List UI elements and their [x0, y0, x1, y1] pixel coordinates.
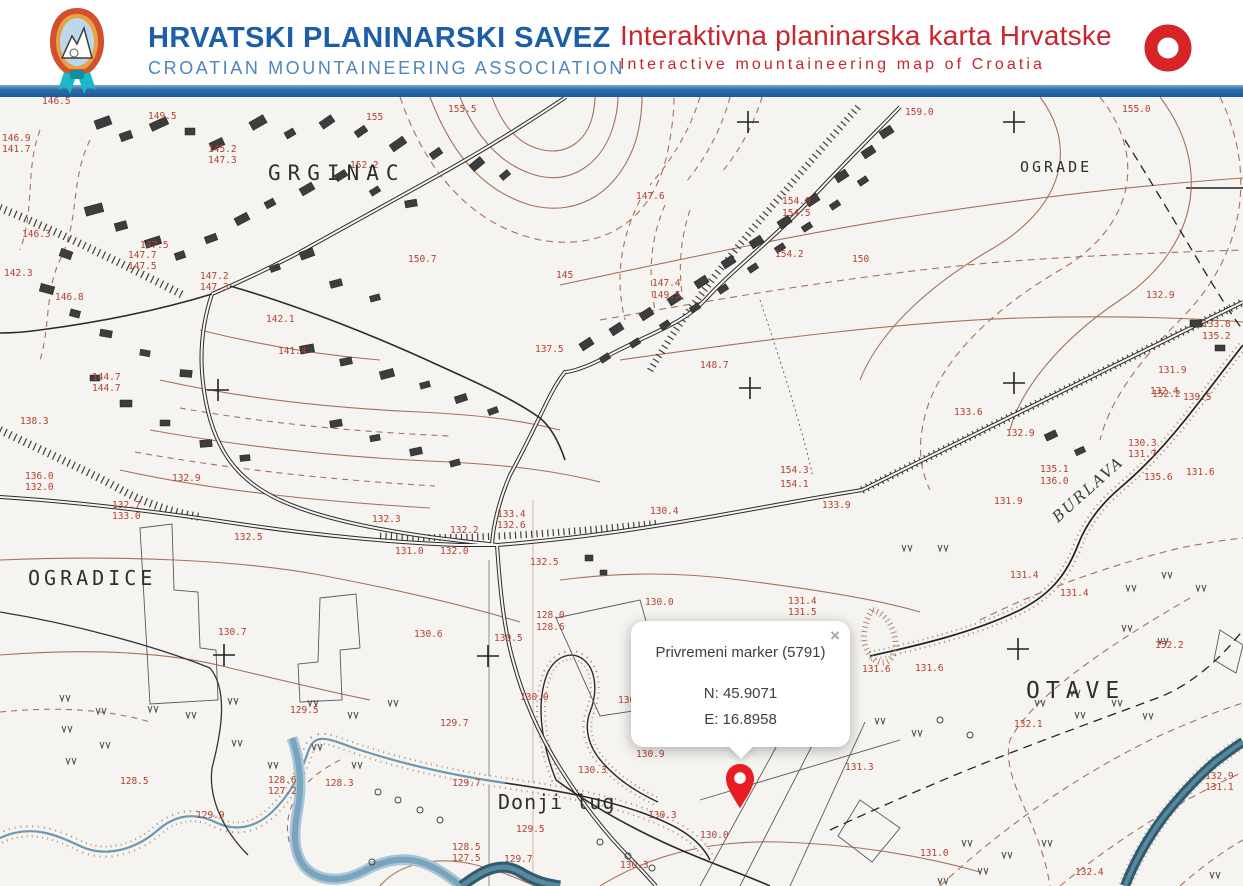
map-canvas[interactable]: 146.5149.5145.2147.3146.9141.7146.3142.3…	[0, 97, 1243, 886]
elevation-label: 131.4	[1060, 588, 1089, 599]
elevation-label: 129.5	[516, 824, 545, 835]
elevation-label: 154.2	[775, 249, 804, 260]
elevation-label: 130.6	[414, 629, 443, 640]
elevation-label: 127.5	[452, 853, 481, 864]
elevation-label: 145	[556, 270, 573, 281]
elevation-label: 133.0	[112, 511, 141, 522]
building	[185, 128, 195, 135]
elevation-label: 133.6	[954, 407, 983, 418]
elevation-label: 135.1	[1040, 464, 1069, 475]
place-label: OGRADICE	[28, 566, 156, 590]
elevation-label: 130.3	[578, 765, 607, 776]
building	[585, 555, 593, 561]
elevation-label: 131.6	[1186, 467, 1215, 478]
elevation-label: 149.5	[148, 111, 177, 122]
elevation-label: 130.7	[218, 627, 247, 638]
app-title-block: Interaktivna planinarska karta Hrvatske …	[620, 20, 1120, 74]
elevation-label: 129.7	[504, 854, 533, 865]
org-subtitle: CROATIAN MOUNTAINEERING ASSOCIATION	[148, 58, 618, 79]
elevation-label: 137.5	[535, 344, 564, 355]
popup-lon: E: 16.8958	[631, 707, 850, 733]
building	[160, 420, 170, 426]
elevation-label: 136.0	[25, 471, 54, 482]
building	[180, 369, 193, 377]
ring-logo-icon	[1144, 24, 1192, 72]
elevation-label: 135.6	[1144, 472, 1173, 483]
elevation-label: 131.7	[1128, 449, 1157, 460]
elevation-label: 142.3	[4, 268, 33, 279]
elevation-label: 150.7	[408, 254, 437, 265]
elevation-label: 129.7	[440, 718, 469, 729]
elevation-label: 131.6	[862, 664, 891, 675]
building	[240, 455, 250, 462]
building	[1215, 345, 1225, 351]
place-label: Donji lug	[498, 790, 615, 814]
elevation-label: 132.9	[1205, 771, 1234, 782]
popup-close-icon[interactable]: ×	[830, 627, 840, 644]
elevation-label: 132.2	[450, 525, 479, 536]
elevation-label: 130.3	[620, 860, 649, 871]
popup-title: Privremeni marker (5791)	[631, 644, 850, 661]
elevation-label: 128.5	[452, 842, 481, 853]
elevation-label: 131.4	[788, 596, 817, 607]
elevation-label: 141.4	[278, 346, 307, 357]
elevation-label: 146.5	[42, 97, 71, 107]
elevation-label: 142.1	[266, 314, 295, 325]
elevation-label: 130.3	[1128, 438, 1157, 449]
elevation-label: 141.7	[2, 144, 31, 155]
place-label: OTAVE	[1026, 678, 1125, 704]
elevation-label: 132.5	[234, 532, 263, 543]
elevation-label: 147.7	[128, 250, 157, 261]
elevation-label: 129.7	[452, 778, 481, 789]
elevation-label: 144.7	[92, 383, 121, 394]
building	[120, 400, 132, 407]
elevation-label: 144.7	[92, 372, 121, 383]
elevation-label: 146.3	[22, 229, 51, 240]
elevation-label: 131.4	[1010, 570, 1039, 581]
elevation-label: 132.9	[1146, 290, 1175, 301]
app-title: Interaktivna planinarska karta Hrvatske	[620, 20, 1120, 52]
elevation-label: 128.6	[268, 775, 297, 786]
elevation-label: 130.5	[494, 633, 523, 644]
map-popup: × Privremeni marker (5791) N: 45.9071 E:…	[631, 621, 850, 747]
elevation-label: 131.9	[1158, 365, 1187, 376]
popup-coordinates: N: 45.9071 E: 16.8958	[631, 681, 850, 732]
elevation-label: 154.5	[782, 208, 811, 219]
elevation-label: 154.1	[780, 479, 809, 490]
elevation-label: 152.2	[1152, 389, 1181, 400]
map-image: 146.5149.5145.2147.3146.9141.7146.3142.3…	[0, 97, 1243, 886]
elevation-label: 155	[366, 112, 383, 123]
elevation-label: 128.5	[120, 776, 149, 787]
elevation-label: 131.5	[788, 607, 817, 618]
building	[200, 439, 213, 447]
elevation-label: 159.0	[905, 107, 934, 118]
elevation-label: 145.2	[208, 144, 237, 155]
elevation-label: 128.3	[325, 778, 354, 789]
elevation-label: 128.6	[536, 622, 565, 633]
elevation-label: 132.6	[497, 520, 526, 531]
elevation-label: 130.4	[650, 506, 679, 517]
map-marker-pin[interactable]	[723, 761, 757, 813]
elevation-label: 146.9	[2, 133, 31, 144]
elevation-label: 133.8	[1202, 319, 1231, 330]
elevation-label: 132.0	[25, 482, 54, 493]
elevation-label: 132.9	[172, 473, 201, 484]
elevation-label: 139.5	[1183, 392, 1212, 403]
header-divider-bar	[0, 85, 1243, 97]
elevation-label: 130.0	[645, 597, 674, 608]
elevation-label: 132.0	[440, 546, 469, 557]
org-title: HRVATSKI PLANINARSKI SAVEZ	[148, 22, 618, 55]
elevation-label: 129.9	[196, 810, 225, 821]
elevation-label: 132.1	[1014, 719, 1043, 730]
elevation-label: 147.5	[128, 261, 157, 272]
elevation-label: 147.2	[200, 271, 229, 282]
elevation-label: 154.0	[782, 196, 811, 207]
elevation-label: 132.9	[1006, 428, 1035, 439]
elevation-label: 128.0	[536, 610, 565, 621]
elevation-label: 130.3	[648, 810, 677, 821]
building	[1190, 320, 1202, 327]
elevation-label: 132.3	[372, 514, 401, 525]
elevation-label: 127.2	[268, 786, 297, 797]
elevation-label: 129.5	[290, 705, 319, 716]
building	[600, 570, 607, 575]
elevation-label: 152.2	[1155, 640, 1184, 651]
elevation-label: 133.9	[822, 500, 851, 511]
elevation-label: 147.6	[636, 191, 665, 202]
app-header: HRVATSKI PLANINARSKI SAVEZ CROATIAN MOUN…	[0, 0, 1243, 85]
elevation-label: 147.4	[652, 278, 681, 289]
elevation-label: 132.7	[112, 500, 141, 511]
elevation-label: 138.3	[20, 416, 49, 427]
popup-lat: N: 45.9071	[631, 681, 850, 707]
elevation-label: 131.6	[915, 663, 944, 674]
elevation-label: 130.9	[636, 749, 665, 760]
hps-logo	[44, 6, 110, 96]
org-title-block: HRVATSKI PLANINARSKI SAVEZ CROATIAN MOUN…	[148, 22, 618, 79]
elevation-label: 132.4	[1075, 867, 1104, 878]
elevation-label: 131.0	[395, 546, 424, 557]
app-subtitle: Interactive mountaineering map of Croati…	[620, 56, 1120, 74]
elevation-label: 149.5	[652, 290, 681, 301]
elevation-label: 132.5	[530, 557, 559, 568]
place-label: OGRADE	[1020, 158, 1092, 176]
elevation-label: 131.0	[920, 848, 949, 859]
elevation-label: 155.5	[448, 104, 477, 115]
elevation-label: 147.3	[200, 282, 229, 293]
place-label: GRGINAC	[268, 161, 406, 185]
elevation-label: 131.3	[845, 762, 874, 773]
elevation-label: 148.7	[700, 360, 729, 371]
elevation-label: 130.0	[700, 830, 729, 841]
elevation-label: 147.3	[208, 155, 237, 166]
elevation-label: 131.9	[994, 496, 1023, 507]
elevation-label: 133.4	[497, 509, 526, 520]
elevation-label: 136.0	[1040, 476, 1069, 487]
elevation-label: 135.2	[1202, 331, 1231, 342]
elevation-label: 155.0	[1122, 104, 1151, 115]
elevation-label: 130.0	[520, 692, 549, 703]
elevation-label: 131.1	[1205, 782, 1234, 793]
elevation-label: 154.3	[780, 465, 809, 476]
elevation-label: 146.8	[55, 292, 84, 303]
elevation-label: 150	[852, 254, 869, 265]
